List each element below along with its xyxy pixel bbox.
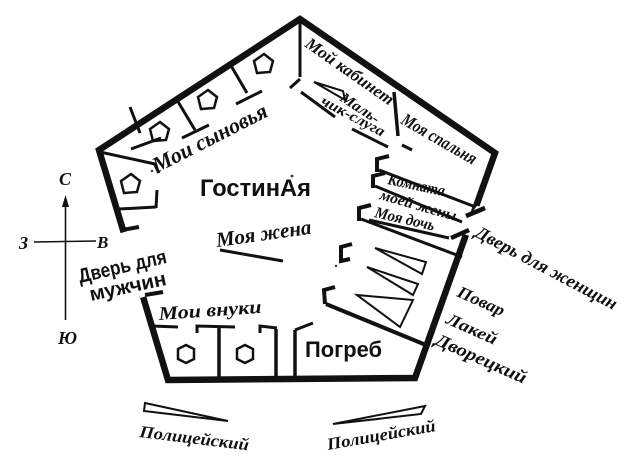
svg-text:В: В (96, 233, 108, 252)
svg-text:ГостинАя: ГостинАя (200, 175, 311, 202)
svg-text:Ю: Ю (57, 328, 77, 348)
svg-text:З: З (18, 233, 28, 253)
svg-text:Погреб: Погреб (305, 337, 382, 362)
svg-text:С: С (59, 169, 72, 189)
